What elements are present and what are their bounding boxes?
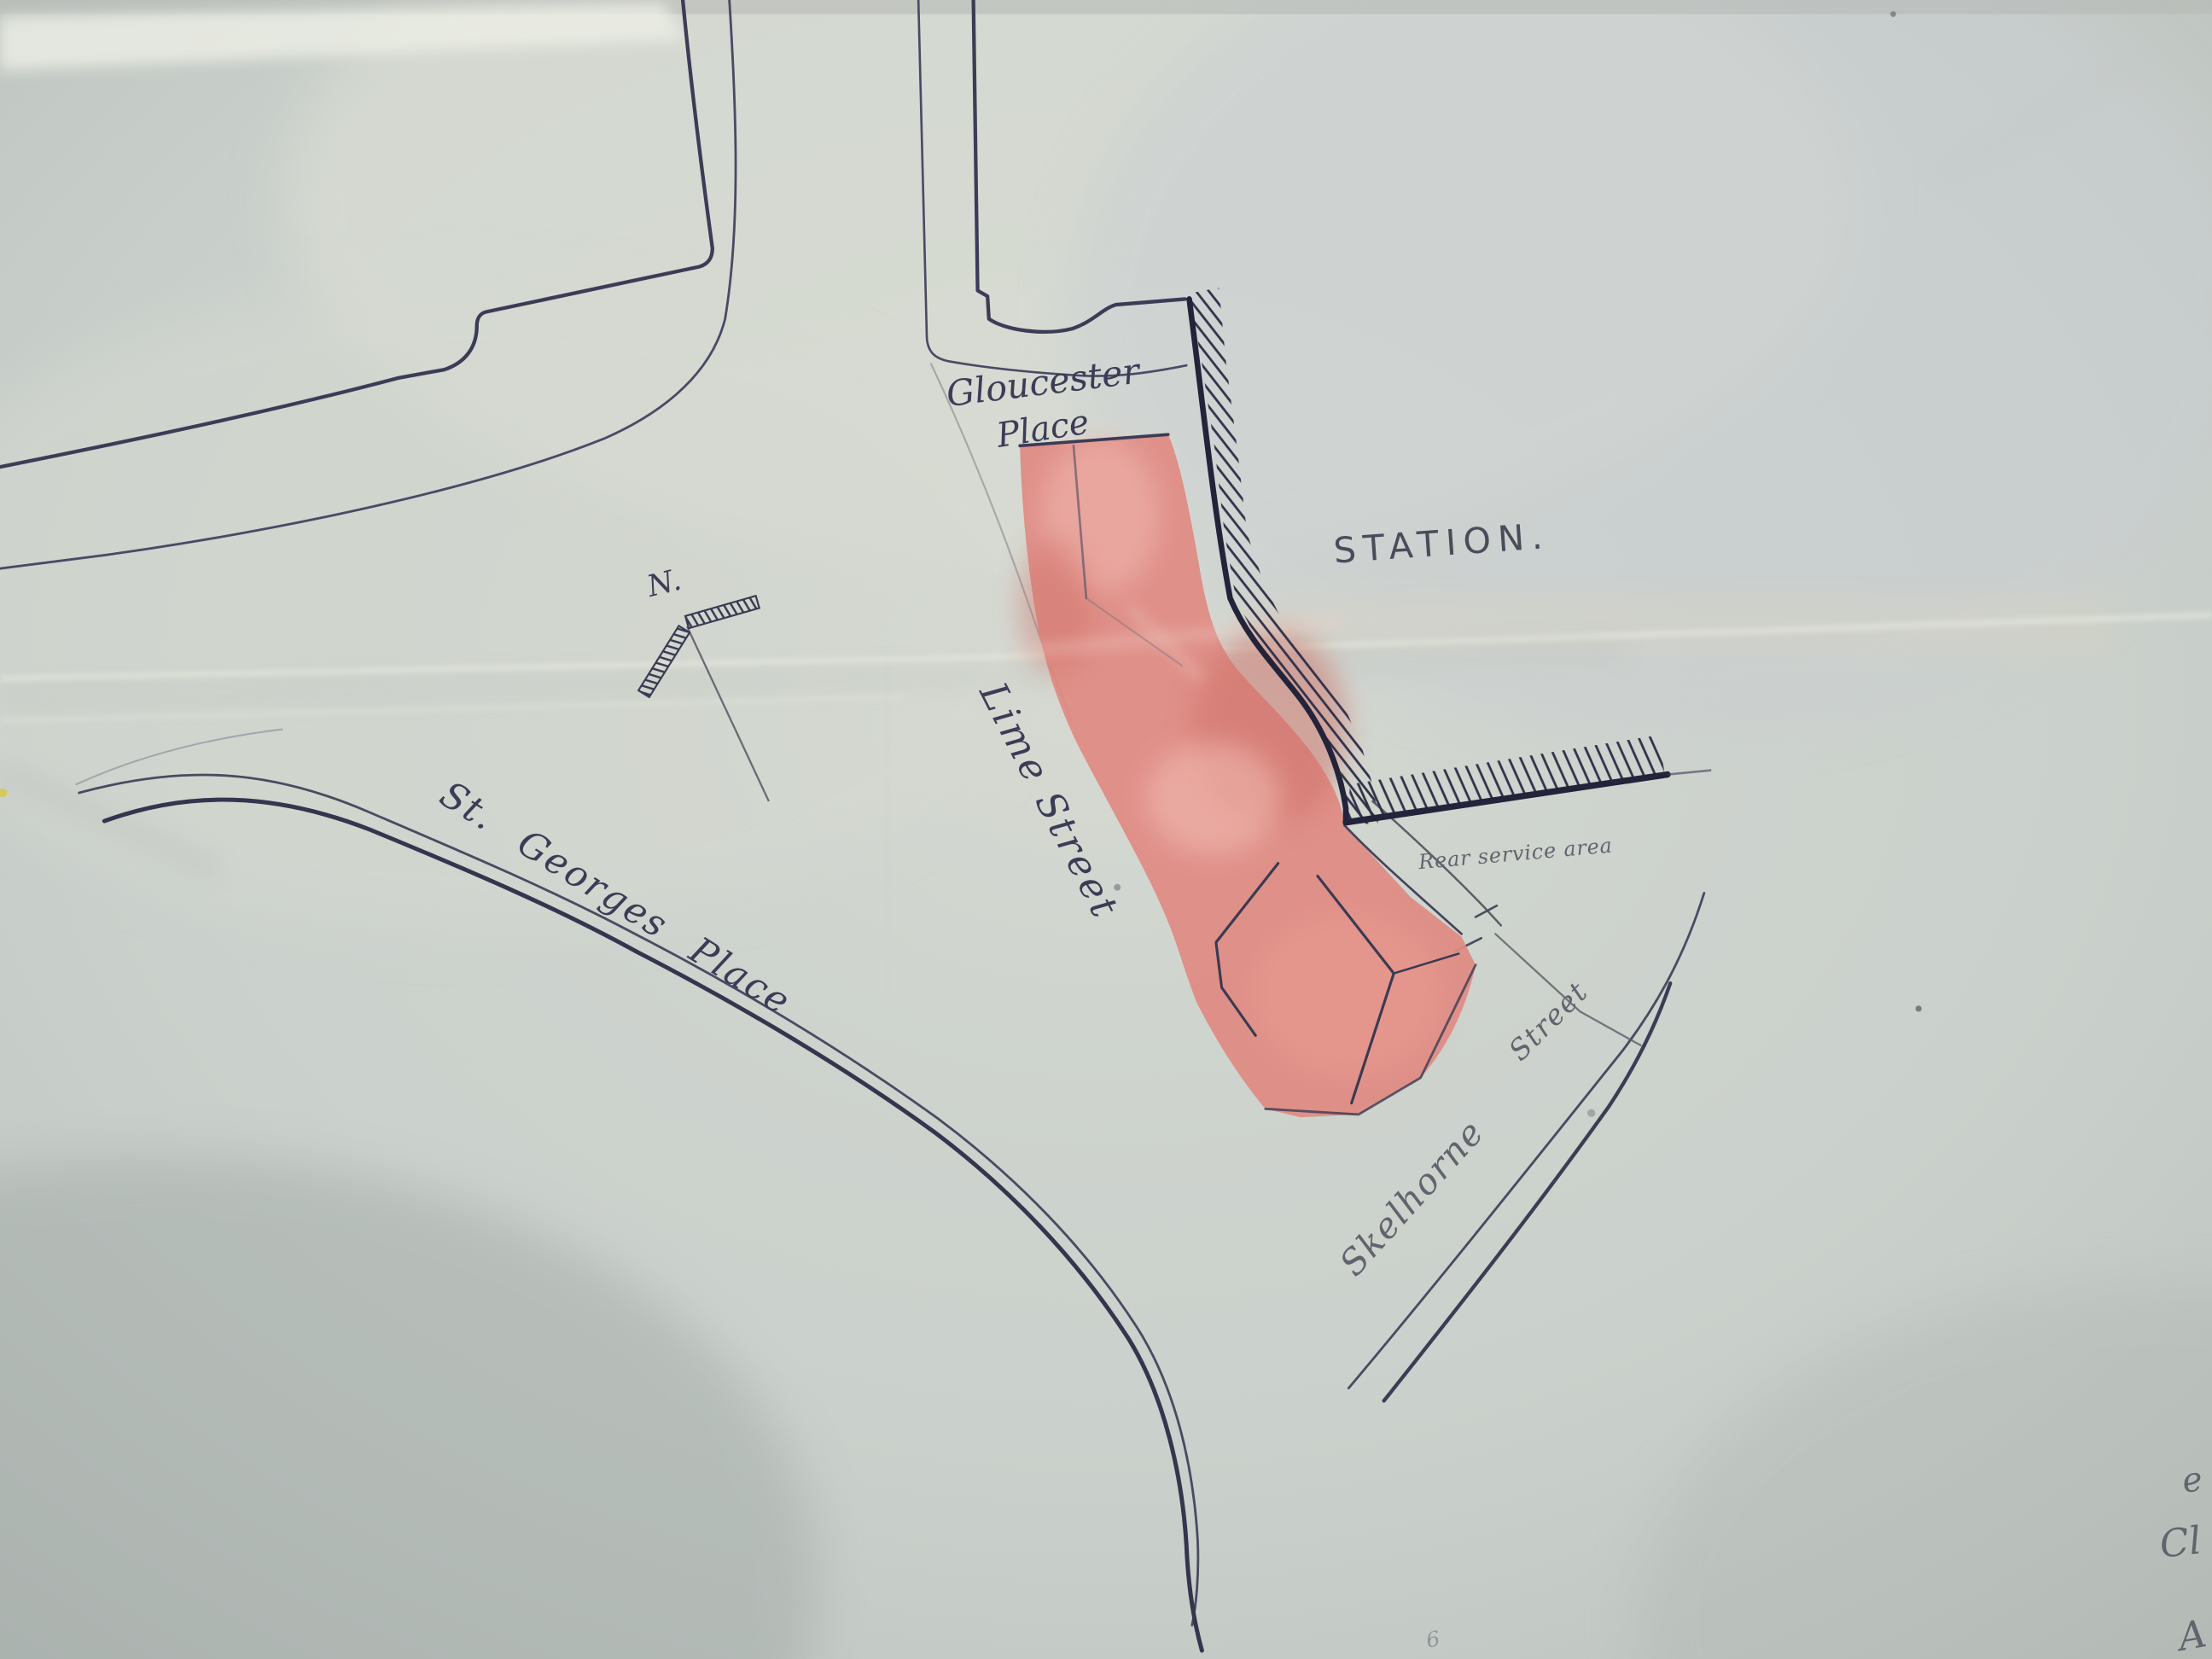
site-plan-svg: Gloucester Place STATION. Lime Street St… — [0, 0, 2212, 1659]
pencil-dot-2 — [1587, 1109, 1595, 1117]
crease-vertical-lime — [886, 661, 888, 1002]
paper-background — [0, 0, 2212, 1659]
edge-text-fragment-2: Cl — [2157, 1518, 2203, 1567]
dark-speck-2 — [1890, 11, 1896, 17]
red-mid-patch — [1251, 913, 1443, 1077]
dark-speck-1 — [1916, 1005, 1922, 1011]
map-photo: Gloucester Place STATION. Lime Street St… — [0, 0, 2212, 1659]
pencil-dot-1 — [1114, 884, 1121, 891]
red-light-patch-2 — [1145, 742, 1281, 855]
